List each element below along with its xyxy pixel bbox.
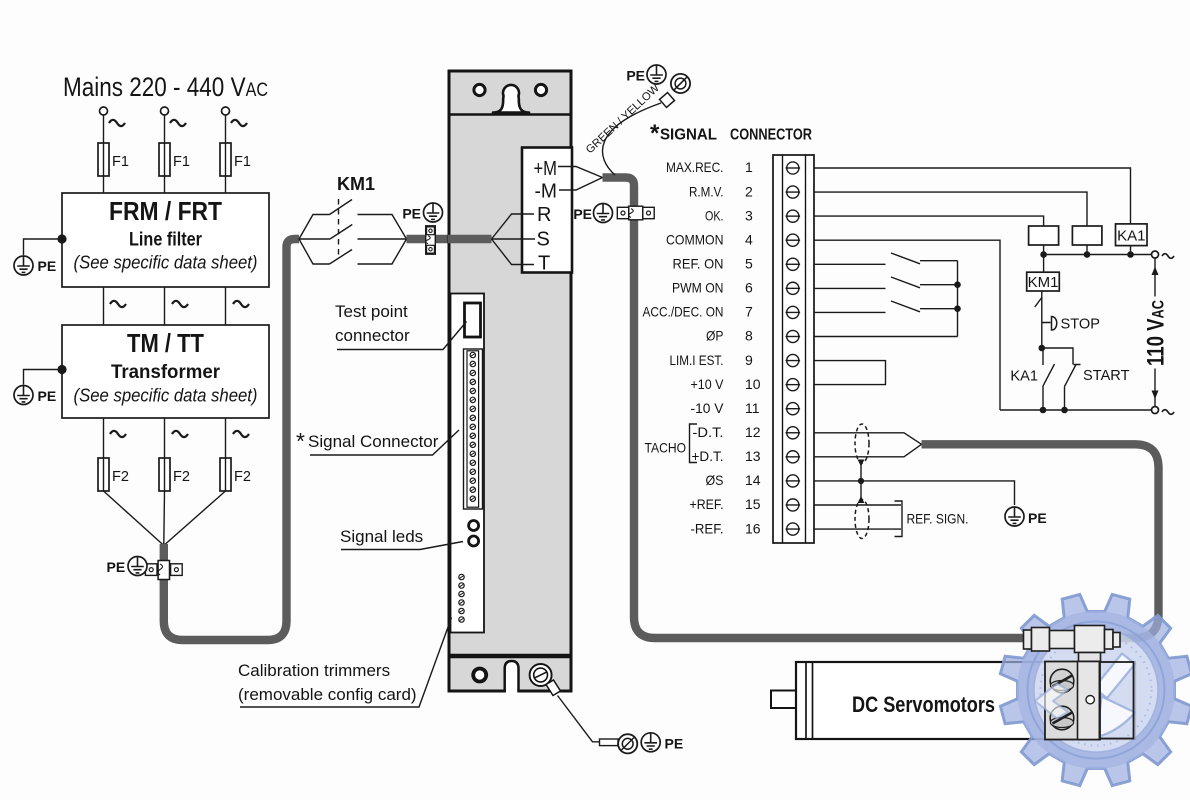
svg-text:PE: PE [573, 206, 592, 222]
svg-text:F2: F2 [112, 469, 129, 485]
svg-text:+M: +M [534, 158, 558, 180]
svg-text:START: START [1083, 368, 1130, 384]
svg-text:Signal leds: Signal leds [340, 527, 423, 546]
svg-text:TM / TT: TM / TT [127, 328, 204, 358]
svg-text:11: 11 [745, 400, 760, 416]
svg-text:MAX.REC.: MAX.REC. [666, 159, 724, 175]
svg-text:TACHO: TACHO [645, 440, 687, 456]
svg-text:KA1: KA1 [1010, 369, 1038, 385]
svg-text:REF. SIGN.: REF. SIGN. [907, 511, 969, 527]
svg-text:SIGNAL: SIGNAL [660, 127, 717, 144]
svg-text:6: 6 [745, 280, 753, 296]
svg-text:F1: F1 [173, 154, 190, 170]
svg-text:T: T [538, 253, 550, 275]
svg-text:Signal Connector: Signal Connector [308, 432, 439, 451]
svg-text:F2: F2 [234, 469, 251, 485]
svg-text:R: R [537, 204, 551, 226]
svg-text:(See specific data sheet): (See specific data sheet) [74, 386, 258, 406]
svg-text:KA1: KA1 [1117, 228, 1145, 245]
svg-text:-D.T.: -D.T. [693, 424, 724, 440]
svg-text:R.M.V.: R.M.V. [689, 183, 724, 199]
svg-text:+10 V: +10 V [691, 376, 725, 392]
svg-text:+D.T.: +D.T. [692, 448, 724, 464]
svg-text:DC Servomotors: DC Servomotors [852, 692, 995, 717]
svg-text:7: 7 [745, 304, 753, 320]
svg-text:12: 12 [745, 424, 761, 440]
svg-text:-10 V: -10 V [691, 400, 725, 416]
svg-text:PE: PE [38, 388, 57, 404]
svg-text:-REF.: -REF. [691, 520, 724, 536]
svg-text:COMMON: COMMON [666, 231, 724, 247]
svg-text:KM1: KM1 [1028, 274, 1059, 291]
svg-text:PE: PE [665, 736, 684, 752]
svg-text:13: 13 [745, 448, 761, 464]
svg-text:*: * [650, 120, 660, 147]
svg-text:3: 3 [745, 207, 753, 223]
svg-text:F1: F1 [112, 154, 129, 170]
svg-text:Mains 220 - 440 VAC: Mains 220 - 440 VAC [63, 72, 268, 102]
svg-text:CONNECTOR: CONNECTOR [730, 127, 812, 144]
svg-text:5: 5 [745, 255, 753, 271]
svg-text:9: 9 [745, 352, 753, 368]
svg-text:ACC./DEC. ON: ACC./DEC. ON [643, 304, 724, 320]
svg-text:15: 15 [745, 496, 761, 512]
svg-text:PE: PE [38, 258, 57, 274]
svg-text:*: * [296, 428, 305, 454]
svg-text:REF. ON: REF. ON [673, 255, 724, 271]
svg-text:+REF.: +REF. [690, 496, 724, 512]
svg-text:PE: PE [1028, 510, 1047, 526]
svg-text:STOP: STOP [1061, 317, 1100, 333]
svg-text:F2: F2 [173, 469, 190, 485]
svg-text:KM1: KM1 [337, 174, 375, 194]
svg-text:Test point: Test point [335, 302, 408, 321]
svg-text:10: 10 [745, 376, 761, 392]
svg-text:16: 16 [745, 520, 761, 536]
svg-text:14: 14 [745, 472, 761, 488]
svg-text:LIM.I EST.: LIM.I EST. [670, 352, 724, 368]
svg-text:F1: F1 [234, 154, 251, 170]
svg-text:FRM / FRT: FRM / FRT [109, 196, 222, 226]
svg-text:Line filter: Line filter [129, 229, 202, 251]
svg-text:PE: PE [626, 68, 645, 84]
svg-text:-M: -M [535, 181, 558, 203]
svg-text:8: 8 [745, 328, 753, 344]
svg-text:ØS: ØS [706, 472, 724, 488]
svg-text:connector: connector [335, 326, 410, 345]
svg-text:PE: PE [107, 559, 126, 575]
svg-text:PE: PE [402, 206, 421, 222]
svg-text:4: 4 [745, 231, 753, 247]
svg-text:Calibration trimmers: Calibration trimmers [238, 661, 390, 680]
svg-text:Transformer: Transformer [111, 361, 220, 383]
svg-text:OK.: OK. [705, 207, 724, 223]
svg-text:(See specific data sheet): (See specific data sheet) [74, 253, 258, 273]
svg-text:(removable config card): (removable config card) [238, 685, 417, 704]
svg-text:1: 1 [745, 159, 753, 175]
svg-text:PWM ON: PWM ON [672, 280, 724, 296]
svg-text:2: 2 [745, 183, 753, 199]
svg-text:S: S [537, 229, 550, 251]
svg-text:ØP: ØP [706, 328, 724, 344]
